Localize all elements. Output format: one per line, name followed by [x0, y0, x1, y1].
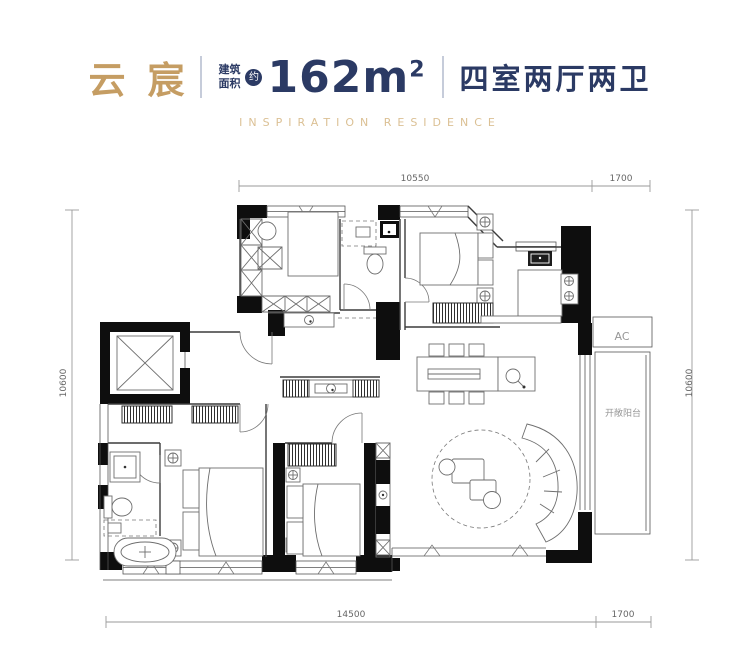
dim-left: 10600 — [59, 368, 69, 397]
dim-top-right: 1700 — [610, 174, 633, 184]
title-row: 云宸 建筑 面积 约 162m2 四室两厅两卫 — [0, 50, 740, 104]
master-bathroom — [104, 452, 176, 566]
dim-top-main: 10550 — [401, 174, 430, 184]
master-bedroom — [122, 406, 263, 556]
kitchen-island — [518, 270, 562, 316]
toilet — [367, 254, 383, 274]
toilet-tank — [364, 247, 386, 254]
bed — [303, 484, 360, 556]
ac-label: AC — [614, 330, 629, 343]
apartment-type: 四室两厅两卫 — [460, 56, 652, 98]
dim-bottom-right: 1700 — [612, 610, 635, 620]
toilet-tank — [104, 496, 112, 518]
chair — [258, 222, 276, 240]
area-prefix-top: 建筑 — [218, 63, 240, 77]
desk — [288, 212, 338, 276]
dim-right: 10600 — [685, 368, 695, 397]
coffee-table — [452, 459, 484, 483]
project-name: 云宸 — [88, 50, 206, 104]
area-superscript: 2 — [409, 57, 425, 82]
divider — [200, 56, 202, 98]
toilet — [112, 498, 132, 516]
balcony: AC 开敞阳台 — [593, 317, 652, 534]
area-value: 162m2 — [267, 52, 425, 103]
bathroom-1 — [342, 221, 399, 274]
header: 云宸 建筑 面积 约 162m2 四室两厅两卫 INSPIRATION RESI… — [0, 0, 740, 129]
curved-sofa — [522, 424, 577, 542]
area-number: 162m — [267, 52, 409, 103]
hallway-console — [283, 380, 379, 397]
area-prefix-bottom: 面积 — [218, 77, 240, 91]
bed — [199, 468, 263, 556]
approx-badge: 约 — [245, 69, 262, 86]
elevator-shaft — [100, 322, 190, 404]
dining-area — [417, 344, 535, 404]
area-group: 建筑 面积 约 162m2 — [218, 52, 425, 103]
subtitle: INSPIRATION RESIDENCE — [0, 116, 740, 129]
dim-bottom-main: 14500 — [337, 610, 366, 620]
divider — [442, 56, 444, 98]
bed — [420, 233, 478, 285]
balcony-label: 开敞阳台 — [605, 407, 641, 419]
bedroom-2 — [420, 214, 493, 323]
stove — [561, 274, 578, 304]
living-room — [432, 424, 577, 542]
area-prefix: 建筑 面积 — [218, 63, 240, 91]
